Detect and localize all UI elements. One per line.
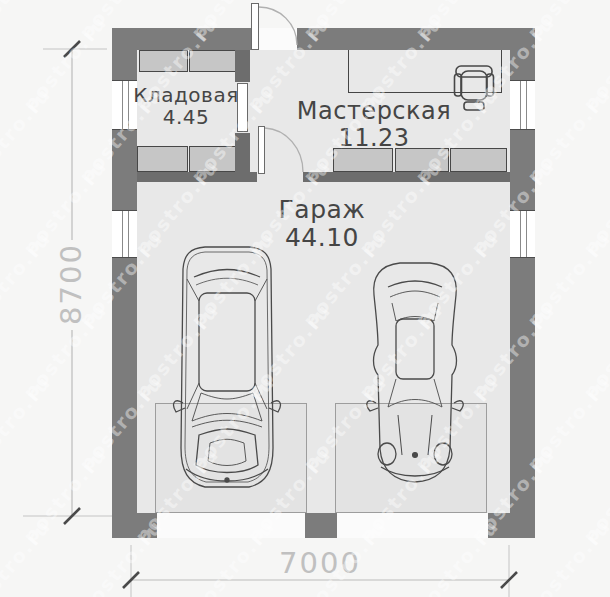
window-right-workshop: [510, 80, 535, 130]
watermark-text: postro.ru: [19, 11, 111, 115]
room-name: Гараж: [242, 196, 402, 224]
partition-vertical-upper: [235, 50, 250, 82]
office-chair: [452, 64, 496, 112]
watermark-text: postro.ru: [523, 515, 610, 597]
watermark-text: postro.ru: [579, 11, 610, 115]
entry-door-leaf: [251, 3, 259, 50]
room-area: 4.45: [126, 106, 246, 128]
window-glazing: [122, 211, 129, 257]
watermark-text: postro.ru: [0, 227, 55, 331]
workshop-cabinet: [450, 148, 507, 172]
wall-top: [112, 28, 535, 50]
floor-plan: Кладовая 4.45 Мастерская 11.23 Гараж 44.…: [0, 0, 610, 597]
window-left-garage: [112, 210, 137, 258]
dimension-label-width: 7000: [260, 546, 380, 576]
watermark-text: postro.ru: [19, 443, 111, 547]
wall-bottom-left: [112, 513, 157, 538]
storage-shelf: [189, 146, 237, 172]
watermark-text: postro.ru: [0, 371, 55, 475]
workshop-door-leaf: [258, 126, 265, 174]
watermark-text: postro.ru: [579, 155, 610, 259]
dimension-label-height: 8700: [54, 224, 84, 344]
partition-horizontal-left: [137, 172, 257, 182]
watermark-text: postro.ru: [579, 443, 610, 547]
watermark-text: postro.ru: [0, 83, 55, 187]
room-area: 11.23: [294, 125, 454, 152]
watermark-text: postro.ru: [523, 227, 610, 331]
room-label-garage: Гараж 44.10: [242, 196, 402, 252]
watermark-text: postro.ru: [523, 0, 610, 43]
watermark-text: postro.ru: [523, 371, 610, 475]
car-sports: [362, 257, 468, 492]
storage-shelf: [139, 50, 188, 72]
garage-door-opening-left: [157, 513, 305, 538]
watermark-text: postro.ru: [579, 299, 610, 403]
window-glazing: [520, 211, 527, 257]
watermark-text: postro.ru: [0, 0, 55, 43]
garage-door-opening-right: [337, 513, 488, 538]
room-label-storage: Кладовая 4.45: [126, 84, 246, 129]
partition-vertical-lower: [235, 133, 250, 172]
window-right-garage: [510, 210, 535, 258]
wall-bottom-right: [488, 513, 535, 538]
watermark-text: postro.ru: [523, 83, 610, 187]
partition-horizontal-right: [303, 172, 510, 182]
car-suv: [172, 243, 282, 493]
watermark-text: postro.ru: [0, 515, 55, 597]
wall-bottom-center-pier: [305, 513, 337, 538]
storage-shelf: [189, 50, 237, 72]
room-name: Мастерская: [294, 98, 454, 125]
window-glazing: [520, 81, 527, 129]
room-name: Кладовая: [126, 84, 246, 106]
room-label-workshop: Мастерская 11.23: [294, 98, 454, 152]
room-area: 44.10: [242, 224, 402, 252]
storage-shelf: [137, 146, 188, 172]
